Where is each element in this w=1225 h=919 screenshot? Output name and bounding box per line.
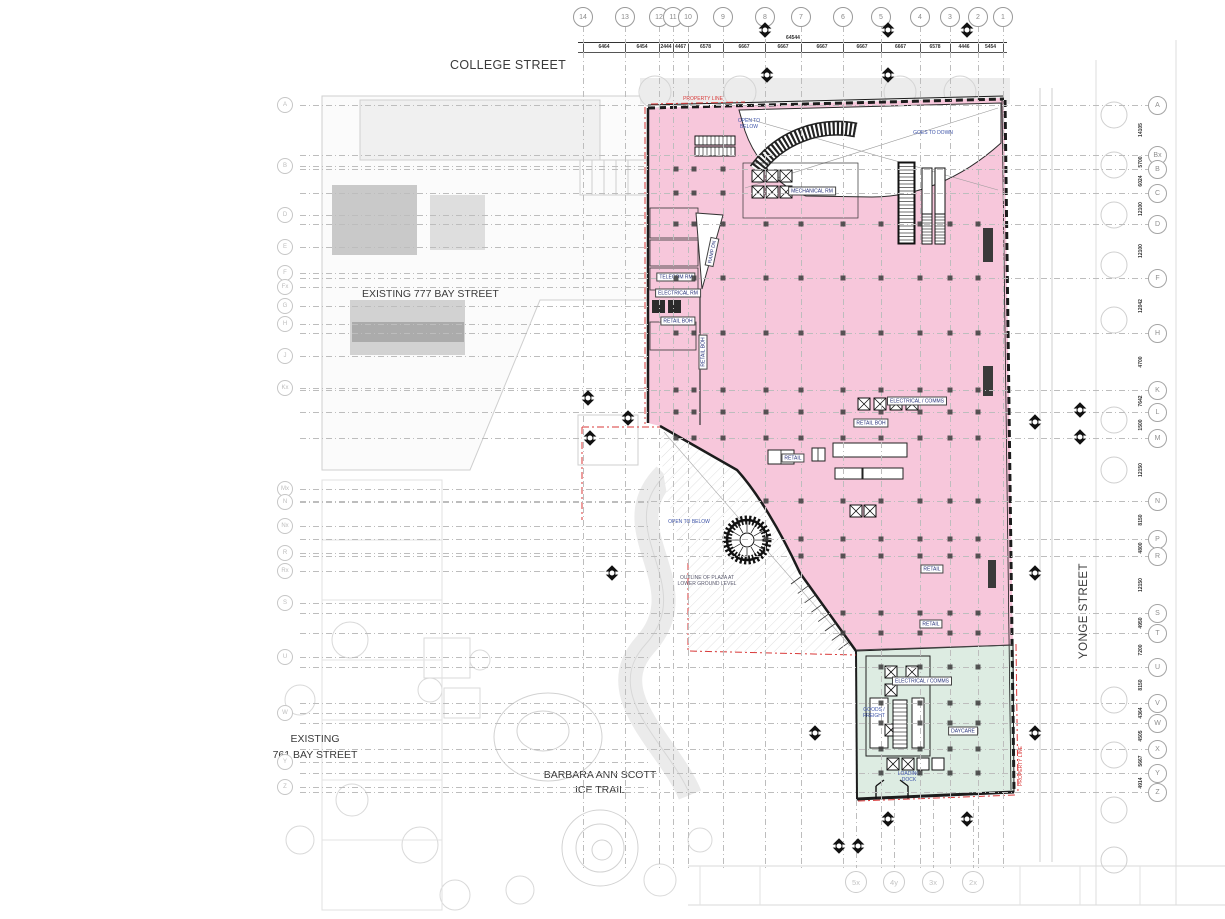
grid-line-horizontal-short <box>300 787 650 788</box>
grid-bubble-right: F <box>1148 269 1167 288</box>
column-marker <box>918 701 923 706</box>
column-marker <box>841 331 846 336</box>
column-marker <box>764 331 769 336</box>
column-marker <box>692 410 697 415</box>
dimension-line-outer <box>578 42 1007 43</box>
dimension-label-right: 12150 <box>1138 578 1144 592</box>
column-marker <box>674 222 679 227</box>
grid-bubble-right: K <box>1148 381 1167 400</box>
grid-bubble-right: S <box>1148 604 1167 623</box>
column-marker <box>799 276 804 281</box>
college-street-label: COLLEGE STREET <box>450 58 630 72</box>
column-marker <box>674 388 679 393</box>
column-marker <box>948 611 953 616</box>
grid-line-vertical <box>688 26 689 868</box>
dimension-label-top: 6464 <box>598 44 609 50</box>
grid-bubble-left: D <box>277 207 293 223</box>
dimension-label-right: 4950 <box>1138 617 1144 628</box>
dimension-label-top: 6667 <box>777 44 788 50</box>
grid-bubble-right: T <box>1148 624 1167 643</box>
yonge-street-label: YONGE STREET <box>1078 551 1090 671</box>
dimension-label-right: 12100 <box>1138 244 1144 258</box>
column-marker <box>674 331 679 336</box>
grid-line-vertical <box>673 26 674 868</box>
room-label: ELECTRICAL / COMMS <box>892 677 952 686</box>
grid-line-vertical <box>583 26 584 868</box>
dimension-tick <box>673 44 674 52</box>
grid-line-vertical <box>920 26 921 868</box>
room-label: ELECTRICAL / COMMS <box>887 397 947 406</box>
column-marker <box>841 499 846 504</box>
column-marker <box>692 276 697 281</box>
dimension-label-right: 8150 <box>1138 679 1144 690</box>
column-marker <box>948 631 953 636</box>
column-marker <box>799 410 804 415</box>
dimension-label-top: 6578 <box>700 44 711 50</box>
column-marker <box>841 631 846 636</box>
grid-line-vertical <box>765 26 766 868</box>
column-marker <box>976 771 981 776</box>
grid-line-horizontal-short <box>300 489 650 490</box>
column-marker <box>841 410 846 415</box>
column-marker <box>799 388 804 393</box>
column-marker <box>879 537 884 542</box>
grid-line-horizontal-short <box>300 526 650 527</box>
dimension-label-top: 4446 <box>958 44 969 50</box>
grid-bubble-top: 4 <box>910 7 930 27</box>
column-marker <box>948 436 953 441</box>
grid-line-vertical-short <box>856 800 857 868</box>
dimension-label-top: 5454 <box>985 44 996 50</box>
column-marker <box>692 388 697 393</box>
column-marker <box>879 747 884 752</box>
grid-line-horizontal-short <box>300 657 650 658</box>
grid-bubble-right: D <box>1148 215 1167 234</box>
column-marker <box>976 537 981 542</box>
column-marker <box>879 701 884 706</box>
column-marker <box>879 611 884 616</box>
dimension-label-right: 12100 <box>1138 202 1144 216</box>
column-marker <box>918 331 923 336</box>
column-marker <box>841 222 846 227</box>
grid-bubble-left: Y <box>277 754 293 770</box>
room-label: MECHANICAL RM <box>788 187 836 196</box>
column-marker <box>918 222 923 227</box>
grid-bubble-left: U <box>277 649 293 665</box>
column-marker <box>918 721 923 726</box>
column-marker <box>918 771 923 776</box>
grid-bubble-top: 13 <box>615 7 635 27</box>
column-marker <box>721 222 726 227</box>
column-marker <box>764 537 769 542</box>
column-marker <box>799 222 804 227</box>
dimension-tick <box>801 44 802 52</box>
dimension-label-top: 6667 <box>738 44 749 50</box>
column-marker <box>948 771 953 776</box>
annotation-note: OPEN TO BELOW <box>668 519 710 525</box>
column-marker <box>721 410 726 415</box>
column-marker <box>879 410 884 415</box>
column-marker <box>799 537 804 542</box>
dimension-label-right: 7200 <box>1138 644 1144 655</box>
column-marker <box>692 167 697 172</box>
grid-line-vertical <box>881 26 882 868</box>
column-marker <box>799 554 804 559</box>
grid-line-horizontal <box>300 792 1148 793</box>
annotation-note: GOODS / FREIGHT <box>863 707 885 719</box>
grid-bubble-left: W <box>277 705 293 721</box>
dimension-tick <box>765 44 766 52</box>
grid-bubble-bottom: 5x <box>845 871 867 893</box>
grid-bubble-left: Kx <box>277 380 293 396</box>
dimension-label-right: 4700 <box>1138 356 1144 367</box>
grid-bubble-right: Y <box>1148 764 1167 783</box>
column-marker <box>764 388 769 393</box>
dimension-label-top: 2444 <box>660 44 671 50</box>
grid-bubble-right: V <box>1148 694 1167 713</box>
column-marker <box>674 276 679 281</box>
column-marker <box>692 331 697 336</box>
grid-line-vertical <box>625 26 626 868</box>
grid-line-horizontal-short <box>300 571 650 572</box>
dimension-tick <box>920 44 921 52</box>
room-label: RETAIL BOH <box>660 317 695 326</box>
grid-line-vertical <box>950 26 951 868</box>
grid-bubble-right: M <box>1148 429 1167 448</box>
grid-line-vertical <box>978 26 979 868</box>
dimension-label-right: 12150 <box>1138 463 1144 477</box>
column-marker <box>799 436 804 441</box>
grid-line-horizontal-short <box>300 603 650 604</box>
column-marker <box>879 222 884 227</box>
grid-line-horizontal-short <box>300 762 650 763</box>
column-marker <box>976 436 981 441</box>
grid-line-vertical <box>843 26 844 868</box>
grid-line-horizontal <box>300 723 1148 724</box>
annotation-note: PROPERTY LINE <box>1018 746 1024 786</box>
grid-bubble-right: H <box>1148 324 1167 343</box>
building-footprint <box>582 96 1018 801</box>
grid-line-horizontal-short <box>300 553 650 554</box>
dimension-tick <box>723 44 724 52</box>
dimension-tick <box>843 44 844 52</box>
grid-bubble-top: 3 <box>940 7 960 27</box>
column-marker <box>841 276 846 281</box>
grid-bubble-top: 2 <box>968 7 988 27</box>
column-marker <box>918 499 923 504</box>
dimension-label-right: 7642 <box>1138 395 1144 406</box>
dimension-label-right: 12042 <box>1138 299 1144 313</box>
grid-line-vertical-short <box>933 800 934 868</box>
column-marker <box>976 701 981 706</box>
annotation-note: PROPERTY LINE <box>683 96 723 102</box>
column-marker <box>948 537 953 542</box>
column-marker <box>918 631 923 636</box>
grid-line-horizontal-short <box>300 273 650 274</box>
column-marker <box>976 665 981 670</box>
room-label: RETAIL <box>920 565 943 574</box>
grid-line-horizontal <box>300 556 1148 557</box>
room-label: ELECTRICAL RM <box>655 289 701 298</box>
dimension-label-top: 6667 <box>856 44 867 50</box>
column-marker <box>948 665 953 670</box>
column-marker <box>799 331 804 336</box>
grid-bubble-right: R <box>1148 547 1167 566</box>
overall-dimension: 64544 <box>786 35 800 41</box>
column-marker <box>764 436 769 441</box>
grid-bubble-left: Z <box>277 779 293 795</box>
column-marker <box>879 436 884 441</box>
grid-line-vertical-short <box>894 800 895 868</box>
grid-line-horizontal <box>300 105 1148 106</box>
grid-bubble-right: P <box>1148 530 1167 549</box>
dimension-label-right: 4800 <box>1138 542 1144 553</box>
dimension-label-right: 8150 <box>1138 514 1144 525</box>
column-marker <box>721 191 726 196</box>
grid-bubble-right: X <box>1148 740 1167 759</box>
grid-line-horizontal-short <box>300 215 650 216</box>
column-marker <box>764 222 769 227</box>
dimension-label-right: 1500 <box>1138 419 1144 430</box>
dimension-label-right: 4914 <box>1138 777 1144 788</box>
grid-line-horizontal <box>300 667 1148 668</box>
column-marker <box>948 554 953 559</box>
grid-line-vertical-short <box>973 800 974 868</box>
grid-line-horizontal <box>300 703 1148 704</box>
room-label: DAYCARE <box>948 727 978 736</box>
column-marker <box>674 167 679 172</box>
column-marker <box>879 388 884 393</box>
column-marker <box>918 611 923 616</box>
grid-line-horizontal-short <box>300 713 650 714</box>
dimension-tick <box>950 44 951 52</box>
grid-bubble-right: A <box>1148 96 1167 115</box>
grid-bubble-right: W <box>1148 714 1167 733</box>
column-marker <box>721 167 726 172</box>
column-marker <box>674 436 679 441</box>
existing-777-bay-label: EXISTING 777 BAY STREET <box>362 288 499 300</box>
column-marker <box>692 436 697 441</box>
dimension-label-top: 4467 <box>675 44 686 50</box>
dimension-label-right: 6024 <box>1138 175 1144 186</box>
room-label: RETAIL <box>781 454 804 463</box>
room-label: RETAIL BOH <box>853 419 888 428</box>
column-marker <box>918 537 923 542</box>
column-marker <box>976 631 981 636</box>
column-marker <box>799 499 804 504</box>
room-label: RETAIL BOH <box>699 334 708 369</box>
column-marker <box>879 665 884 670</box>
column-marker <box>764 276 769 281</box>
grid-bubble-right: C <box>1148 184 1167 203</box>
column-marker <box>692 222 697 227</box>
dimension-line-inner <box>578 52 1007 53</box>
grid-bubble-left: N <box>277 494 293 510</box>
column-marker <box>976 747 981 752</box>
grid-line-horizontal-short <box>300 247 650 248</box>
column-marker <box>692 191 697 196</box>
grid-line-vertical <box>801 26 802 868</box>
column-marker <box>721 276 726 281</box>
column-marker <box>918 388 923 393</box>
column-marker <box>976 721 981 726</box>
column-marker <box>879 331 884 336</box>
grid-line-horizontal <box>300 539 1148 540</box>
grid-bubble-top: 9 <box>713 7 733 27</box>
grid-bubble-top: 10 <box>678 7 698 27</box>
dimension-label-right: 5667 <box>1138 755 1144 766</box>
grid-line-horizontal-short <box>300 502 650 503</box>
grid-bubble-left: E <box>277 239 293 255</box>
annotation-note: OPEN TO BELOW <box>738 118 760 130</box>
column-marker <box>879 771 884 776</box>
existing-761-bay-label: EXISTING 761 BAY STREET <box>255 731 375 763</box>
column-marker <box>841 537 846 542</box>
column-marker <box>879 276 884 281</box>
column-marker <box>976 222 981 227</box>
column-marker <box>948 388 953 393</box>
column-marker <box>918 276 923 281</box>
grid-line-vertical <box>659 26 660 868</box>
column-marker <box>918 410 923 415</box>
grid-bubble-left: Rx <box>277 563 293 579</box>
grid-bubble-left: R <box>277 545 293 561</box>
grid-bubble-top: 7 <box>791 7 811 27</box>
grid-line-horizontal <box>300 633 1148 634</box>
grid-bubble-bottom: 3x <box>922 871 944 893</box>
column-marker <box>976 388 981 393</box>
column-marker <box>976 554 981 559</box>
column-marker <box>764 410 769 415</box>
dimension-label-top: 6578 <box>929 44 940 50</box>
grid-bubble-right: N <box>1148 492 1167 511</box>
floor-plan: COLLEGE STREET EXISTING 777 BAY STREET E… <box>0 0 1225 919</box>
grid-bubble-left: A <box>277 97 293 113</box>
dimension-label-right: 5700 <box>1138 156 1144 167</box>
column-marker <box>918 436 923 441</box>
column-marker <box>674 410 679 415</box>
grid-line-horizontal-short <box>300 166 650 167</box>
column-marker <box>879 721 884 726</box>
grid-line-horizontal <box>300 155 1148 156</box>
grid-line-horizontal-short <box>300 306 650 307</box>
dimension-tick <box>978 44 979 52</box>
column-marker <box>918 554 923 559</box>
grid-bubble-right: B <box>1148 160 1167 179</box>
column-marker <box>841 611 846 616</box>
grid-line-horizontal-short <box>300 356 650 357</box>
dimension-label-right: 4505 <box>1138 730 1144 741</box>
column-marker <box>948 701 953 706</box>
grid-line-vertical <box>723 26 724 868</box>
grid-bubble-bottom: 2x <box>962 871 984 893</box>
dimension-label-top: 6667 <box>895 44 906 50</box>
grid-bubble-left: H <box>277 316 293 332</box>
grid-bubble-right: Z <box>1148 783 1167 802</box>
grid-bubble-left: G <box>277 298 293 314</box>
column-marker <box>948 222 953 227</box>
column-marker <box>879 499 884 504</box>
column-marker <box>879 631 884 636</box>
grid-bubble-top: 14 <box>573 7 593 27</box>
column-marker <box>841 436 846 441</box>
annotation-note: GOES TO DOWN <box>913 130 953 136</box>
column-marker <box>976 611 981 616</box>
column-marker <box>976 331 981 336</box>
column-marker <box>841 554 846 559</box>
annotation-note: OUTLINE OF PLAZA AT LOWER GROUND LEVEL <box>678 575 737 587</box>
dimension-label-top: 6454 <box>636 44 647 50</box>
dimension-tick <box>688 44 689 52</box>
dimension-tick <box>881 44 882 52</box>
grid-bubble-left: Fx <box>277 279 293 295</box>
column-marker <box>721 331 726 336</box>
grid-bubble-right: L <box>1148 403 1167 422</box>
column-marker <box>948 499 953 504</box>
grid-bubble-top: 1 <box>993 7 1013 27</box>
grid-bubble-left: Nx <box>277 518 293 534</box>
column-marker <box>948 721 953 726</box>
grid-line-horizontal <box>300 613 1148 614</box>
column-marker <box>879 554 884 559</box>
grid-bubble-right: U <box>1148 658 1167 677</box>
dimension-tick <box>1003 44 1004 52</box>
grid-bubble-left: J <box>277 348 293 364</box>
dimension-tick <box>625 44 626 52</box>
grid-line-vertical <box>1003 26 1004 868</box>
grid-bubble-left: B <box>277 158 293 174</box>
grid-line-horizontal-short <box>300 324 650 325</box>
grid-bubble-bottom: 4y <box>883 871 905 893</box>
dimension-label-right: 14105 <box>1138 123 1144 137</box>
column-marker <box>721 436 726 441</box>
column-marker <box>976 410 981 415</box>
grid-line-horizontal-short <box>300 388 650 389</box>
column-marker <box>674 191 679 196</box>
column-marker <box>948 276 953 281</box>
column-marker <box>918 665 923 670</box>
column-marker <box>976 276 981 281</box>
grid-bubble-top: 6 <box>833 7 853 27</box>
column-marker <box>841 388 846 393</box>
column-marker <box>948 331 953 336</box>
grid-line-horizontal-short <box>300 287 650 288</box>
column-marker <box>976 499 981 504</box>
room-label: RETAIL <box>919 620 942 629</box>
column-marker <box>918 747 923 752</box>
column-marker <box>948 410 953 415</box>
grid-bubble-left: S <box>277 595 293 611</box>
column-marker <box>721 388 726 393</box>
dimension-label-top: 6667 <box>816 44 827 50</box>
dimension-label-right: 4364 <box>1138 707 1144 718</box>
dimension-tick <box>583 44 584 52</box>
column-marker <box>948 747 953 752</box>
column-marker <box>764 499 769 504</box>
